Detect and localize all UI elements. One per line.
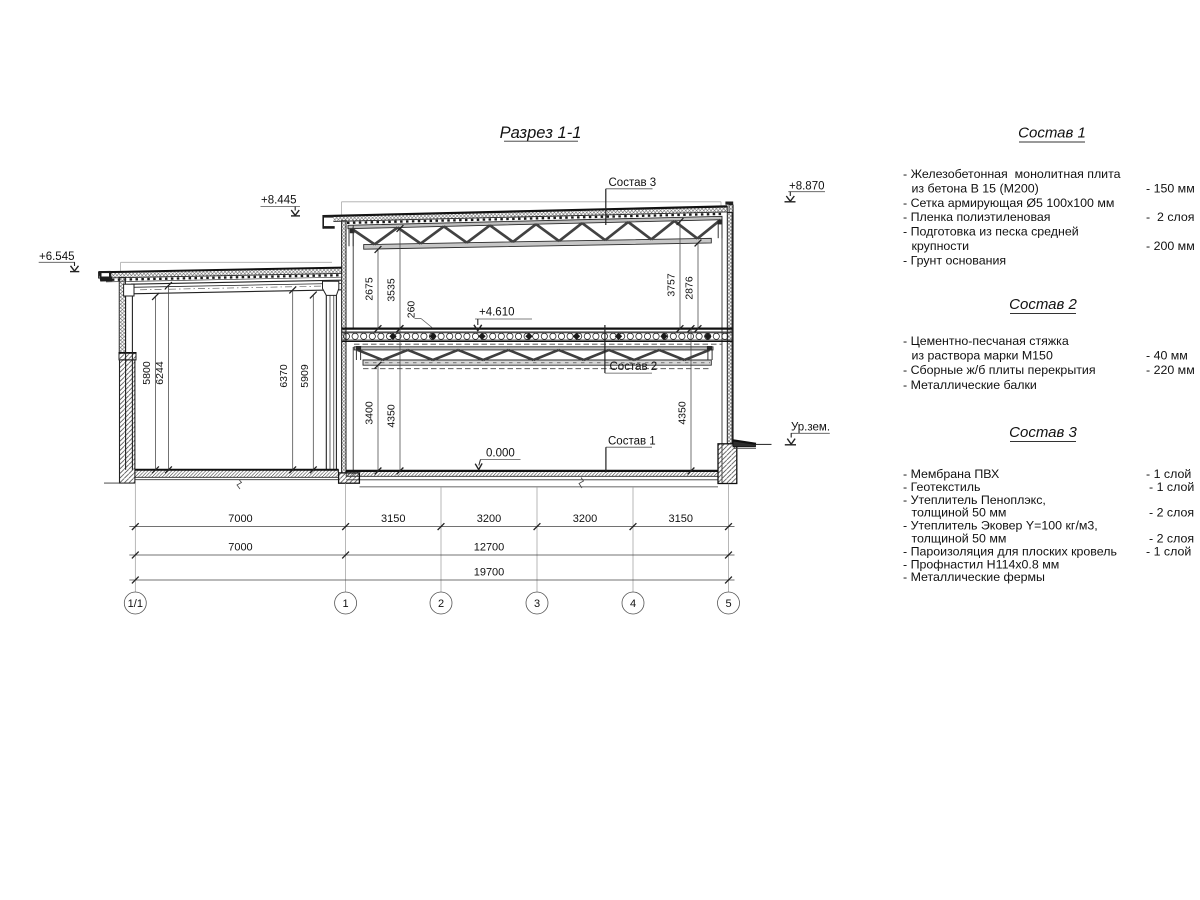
svg-text:4350: 4350 [385,404,397,428]
svg-text:4: 4 [630,598,636,610]
svg-text:+8.870: +8.870 [789,180,825,192]
svg-text:- Сетка армирующая Ø5 100х100: - Сетка армирующая Ø5 100х100 мм [903,196,1114,210]
svg-text:- Утеплитель Пеноплэкс,: - Утеплитель Пеноплэкс, [903,493,1046,507]
svg-text:19700: 19700 [474,567,505,579]
svg-text:- Цементно-песчаная стяжка: - Цементно-песчаная стяжка [903,334,1069,348]
svg-text:толщиной 50 мм: толщиной 50 мм [912,532,1007,546]
svg-text:- Профнастил Н114х0.8 мм: - Профнастил Н114х0.8 мм [903,557,1059,571]
svg-text:+8.445: +8.445 [261,195,297,207]
svg-text:4350: 4350 [676,401,688,425]
svg-text:5909: 5909 [299,364,311,388]
svg-text:3: 3 [534,598,540,610]
svg-text:- Подготовка из песка средней: - Подготовка из песка средней [903,225,1079,239]
svg-text:3150: 3150 [669,513,693,525]
svg-text:260: 260 [406,301,418,319]
svg-text:6244: 6244 [154,361,166,385]
svg-text:- Мембрана ПВХ: - Мембрана ПВХ [903,467,999,481]
svg-text:- Железобетонная монолитная п: - Железобетонная монолитная плита [903,167,1121,181]
svg-text:из раствора марки М150: из раствора марки М150 [912,349,1053,363]
svg-text:- Металлические балки: - Металлические балки [903,378,1037,392]
svg-text:0.000: 0.000 [486,448,515,460]
svg-text:Состав 3: Состав 3 [609,177,657,189]
svg-text:3757: 3757 [665,273,677,297]
svg-text:3200: 3200 [573,513,597,525]
svg-text:6370: 6370 [278,364,290,388]
svg-text:- 1 слой: - 1 слой [1149,480,1194,494]
svg-text:- 40 мм: - 40 мм [1146,349,1188,363]
svg-text:+4.610: +4.610 [479,307,515,319]
svg-text:7000: 7000 [228,542,252,554]
svg-text:3200: 3200 [477,513,501,525]
svg-text:толщиной 50 мм: толщиной 50 мм [912,506,1007,520]
svg-text:из бетона В 15 (М200): из бетона В 15 (М200) [912,181,1039,195]
svg-text:- 2 слоя: - 2 слоя [1146,210,1195,224]
svg-text:Состав 2: Состав 2 [1009,296,1077,313]
svg-text:- 220 мм: - 220 мм [1146,363,1195,377]
svg-text:3400: 3400 [363,401,375,425]
svg-text:- Пленка полиэтиленовая: - Пленка полиэтиленовая [903,210,1051,224]
svg-text:3150: 3150 [381,513,405,525]
svg-text:Состав 2: Состав 2 [610,361,658,373]
svg-text:Разрез 1-1: Разрез 1-1 [500,124,582,142]
svg-text:- 150 мм: - 150 мм [1146,181,1195,195]
svg-text:- Пароизоляция для плоских кро: - Пароизоляция для плоских кровель [903,544,1117,558]
svg-text:2: 2 [438,598,444,610]
svg-text:- Геотекстиль: - Геотекстиль [903,480,980,494]
svg-text:- 2 слоя: - 2 слоя [1149,506,1194,520]
svg-text:Состав 1: Состав 1 [1018,125,1086,142]
svg-text:1/1: 1/1 [128,598,143,610]
svg-text:5800: 5800 [141,361,153,385]
svg-text:- 1 слой: - 1 слой [1146,544,1191,558]
svg-text:1: 1 [343,598,349,610]
svg-text:Ур.зем.: Ур.зем. [791,422,830,434]
svg-text:2876: 2876 [683,276,695,300]
svg-text:12700: 12700 [474,542,505,554]
svg-text:7000: 7000 [228,513,252,525]
svg-text:Состав 3: Состав 3 [1009,424,1077,441]
svg-text:- Грунт основания: - Грунт основания [903,253,1006,267]
svg-text:Состав 1: Состав 1 [608,436,656,448]
svg-text:- 200 мм: - 200 мм [1146,239,1195,253]
svg-text:5: 5 [725,598,731,610]
svg-text:+6.545: +6.545 [39,251,75,263]
svg-text:- Сборные ж/б плиты перекрытия: - Сборные ж/б плиты перекрытия [903,363,1096,377]
svg-text:крупности: крупности [912,239,970,253]
svg-text:- 1 слой: - 1 слой [1146,467,1191,481]
svg-text:3535: 3535 [385,278,397,302]
svg-text:- Утеплитель Эковер Y=100 кг/м: - Утеплитель Эковер Y=100 кг/м3, [903,519,1098,533]
svg-text:2675: 2675 [363,277,375,301]
svg-text:- Металлические фермы: - Металлические фермы [903,570,1045,584]
svg-text:- 2 слоя: - 2 слоя [1149,532,1194,546]
